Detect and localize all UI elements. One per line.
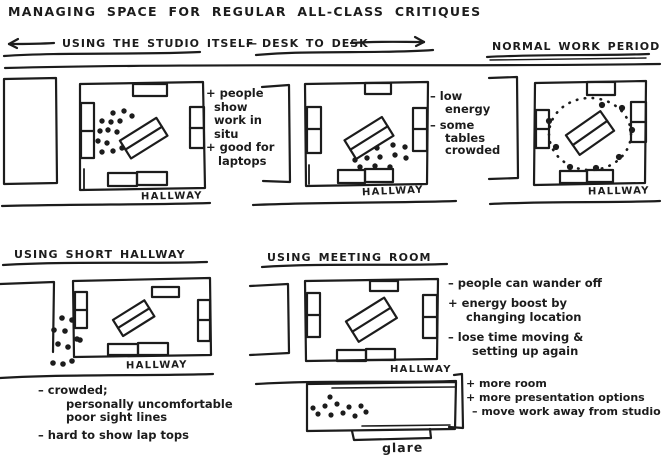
meeting-room-title: USING MEETING ROOM xyxy=(267,251,432,264)
short-hallway-underline xyxy=(3,262,207,265)
note-short-hallway: – crowded; personally uncomfortable poor… xyxy=(38,384,233,442)
center-table xyxy=(345,117,394,159)
desk xyxy=(587,82,615,95)
note-desk-to-desk: – low energy – some tables crowded xyxy=(430,90,500,157)
desk xyxy=(137,172,167,185)
desk xyxy=(366,349,395,360)
desk-to-desk-underline xyxy=(256,50,433,55)
center-table xyxy=(566,111,614,155)
desk xyxy=(365,83,391,94)
short-hallway-title: USING SHORT HALLWAY xyxy=(14,248,186,261)
studio-room-outline xyxy=(80,82,205,190)
note-meeting-room: – people can wander off + energy boost b… xyxy=(448,276,602,359)
studio-itself-label: USING THE STUDIO ITSELF xyxy=(62,37,254,50)
center-table xyxy=(346,298,397,342)
desk xyxy=(108,173,137,186)
row1-bottom-hallway-wall xyxy=(2,201,660,206)
sketch-canvas: MANAGING SPACE FOR REGULAR ALL-CLASS CRI… xyxy=(0,0,663,456)
desk xyxy=(587,170,613,182)
desk xyxy=(108,344,138,355)
bottom-hallway-wall xyxy=(0,374,213,378)
hallway-label: HALLWAY xyxy=(390,364,452,375)
top-hallway-wall xyxy=(5,64,660,68)
people-dots xyxy=(310,394,368,418)
studio-underline xyxy=(4,52,200,56)
desk xyxy=(338,170,365,183)
meeting-room-plan xyxy=(307,374,463,440)
people-dots xyxy=(50,315,83,367)
plan-normal-work xyxy=(489,77,646,185)
desk-to-desk-label: DESK TO DESK xyxy=(262,37,369,50)
hallway-label: HALLWAY xyxy=(141,190,203,202)
note-in-situ: + people show work in situ + good for la… xyxy=(206,87,274,168)
studio-room-outline xyxy=(73,278,211,357)
desk xyxy=(370,281,398,291)
glare-label: glare xyxy=(382,440,424,456)
center-table xyxy=(120,118,168,159)
normal-work-underline xyxy=(487,54,649,60)
desk xyxy=(138,343,168,355)
plan-studio-in-situ xyxy=(4,78,205,190)
center-table xyxy=(113,300,154,336)
meeting-room-outline xyxy=(307,382,456,431)
desk xyxy=(133,84,167,96)
note-meeting-room-lower: + more room + more presentation options … xyxy=(466,377,661,419)
header-separator: — xyxy=(246,37,258,50)
page-title: MANAGING SPACE FOR REGULAR ALL-CLASS CRI… xyxy=(8,4,481,19)
meeting-room-underline xyxy=(262,264,447,267)
adjacent-room xyxy=(4,78,57,184)
studio-room-outline xyxy=(305,82,428,186)
left-arrow-icon xyxy=(9,39,54,48)
hallway-label: HALLWAY xyxy=(126,359,188,371)
normal-work-period-label: NORMAL WORK PERIOD xyxy=(492,40,660,53)
desk xyxy=(365,169,393,182)
desk xyxy=(152,287,179,297)
adjacent-wall xyxy=(0,282,54,352)
hallway-label: HALLWAY xyxy=(588,185,650,197)
adjacent-wall xyxy=(250,284,289,355)
plan-desk-to-desk xyxy=(262,82,428,186)
desk xyxy=(560,171,587,183)
